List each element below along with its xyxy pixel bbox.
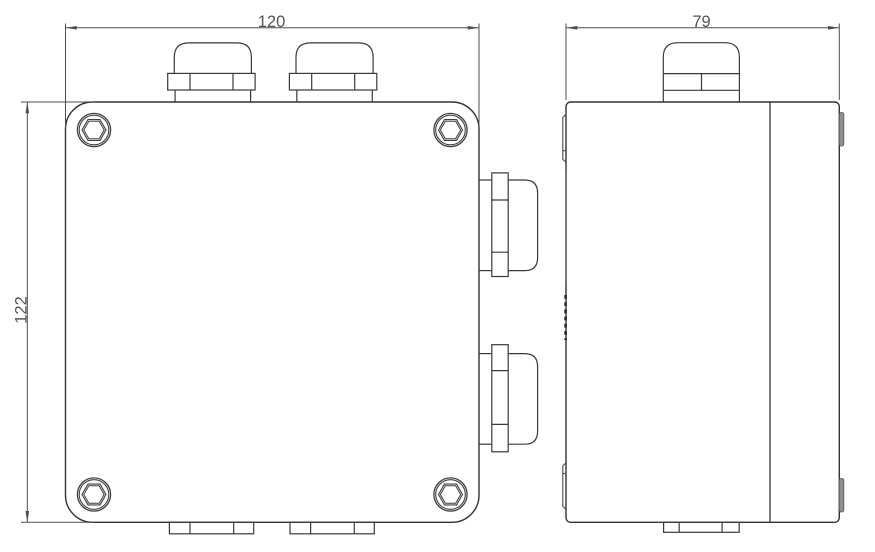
svg-text:122: 122 (13, 296, 31, 324)
svg-text:120: 120 (258, 13, 286, 31)
svg-text:79: 79 (692, 13, 710, 31)
